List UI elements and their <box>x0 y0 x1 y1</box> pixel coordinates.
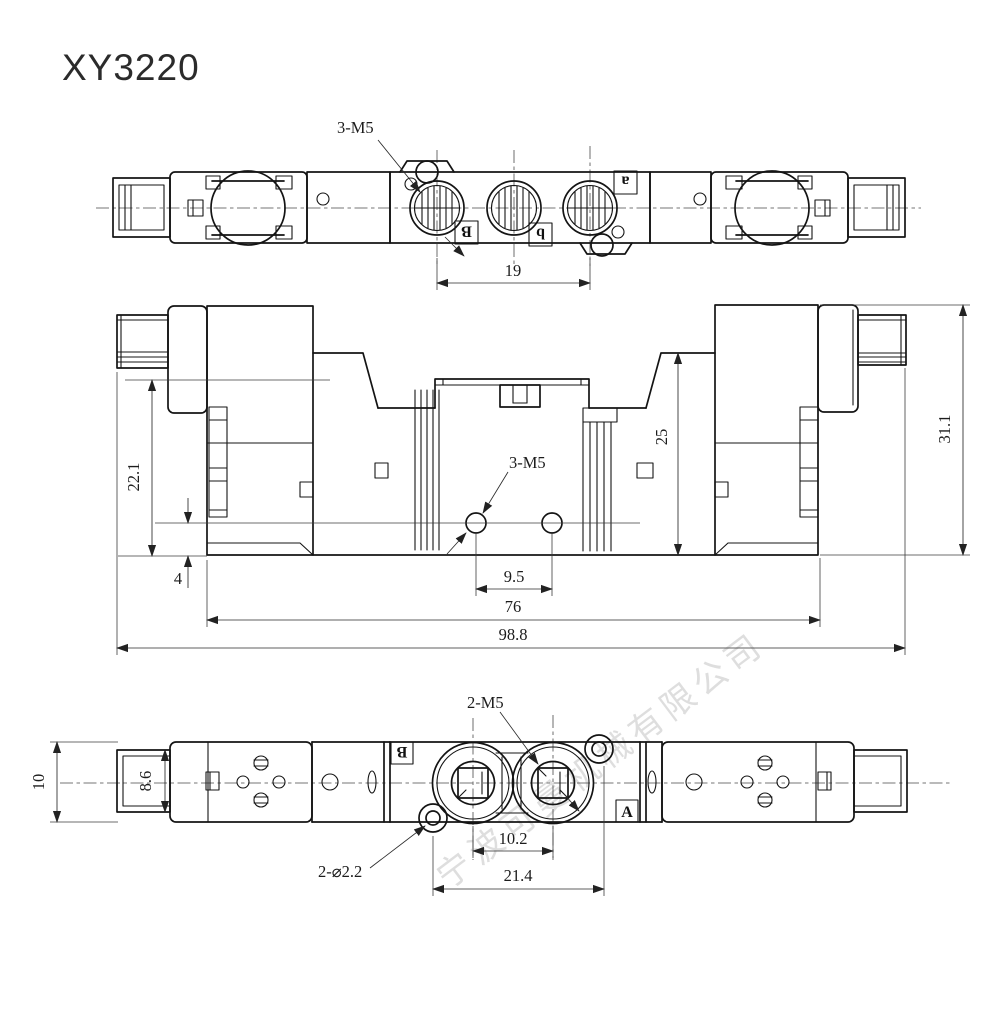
svg-text:9.5: 9.5 <box>504 567 525 586</box>
svg-text:31.1: 31.1 <box>935 415 954 444</box>
front-dim-hole-offset: 4 <box>174 498 188 588</box>
drawing-page: XY3220 宁波可曼机械有限公司 <box>0 0 1000 1015</box>
svg-text:19: 19 <box>505 261 522 280</box>
front-view: 3-M5 22.1 4 9.5 76 <box>117 305 970 655</box>
front-dim-overall-height: 31.1 <box>935 305 963 555</box>
bottom-right-connector <box>854 750 907 812</box>
svg-text:4: 4 <box>174 569 182 588</box>
drawing-title: XY3220 <box>62 47 200 88</box>
front-left-solenoid-body <box>207 306 313 555</box>
top-dim-port-spacing: 19 <box>437 258 590 290</box>
svg-text:3-M5: 3-M5 <box>509 453 546 472</box>
bottom-port-label-B: B <box>391 742 413 764</box>
valve-drawing: XY3220 宁波可曼机械有限公司 <box>0 0 1000 1015</box>
svg-text:2-M5: 2-M5 <box>467 693 504 712</box>
svg-text:B: B <box>461 223 472 240</box>
svg-text:22.1: 22.1 <box>124 463 143 492</box>
top-port-label-a: a <box>614 171 637 194</box>
front-left-connector <box>117 315 168 368</box>
svg-text:76: 76 <box>505 597 522 616</box>
front-dim-center-height: 25 <box>652 353 678 555</box>
front-left-mount <box>168 306 207 413</box>
front-thread-callout: 3-M5 <box>447 453 546 554</box>
svg-text:10.2: 10.2 <box>499 829 528 848</box>
svg-text:a: a <box>622 173 630 190</box>
top-view-centerlines <box>96 146 921 266</box>
bottom-right-solenoid <box>662 742 854 822</box>
watermark-text: 宁波可曼机械有限公司 <box>430 625 772 896</box>
top-left-coil-block <box>307 172 390 243</box>
front-right-solenoid-body <box>715 305 818 555</box>
svg-text:21.4: 21.4 <box>504 866 533 885</box>
bottom-dim-connector-height: 8.6 <box>136 750 165 812</box>
front-dim-solenoid-height: 22.1 <box>124 380 152 556</box>
svg-text:A: A <box>621 804 633 821</box>
svg-text:3-M5: 3-M5 <box>337 118 374 137</box>
front-right-connector <box>858 315 906 365</box>
svg-text:25: 25 <box>652 429 671 446</box>
svg-text:2-⌀2.2: 2-⌀2.2 <box>318 862 362 881</box>
bottom-left-mid-section <box>312 742 390 822</box>
top-left-connector <box>113 178 170 237</box>
svg-text:B: B <box>396 743 407 760</box>
svg-text:8.6: 8.6 <box>136 771 155 792</box>
svg-text:98.8: 98.8 <box>499 625 528 644</box>
front-dim-hole-spacing: 9.5 <box>476 533 552 596</box>
top-view: B b a <box>96 118 921 290</box>
front-right-mount <box>818 305 858 412</box>
svg-text:10: 10 <box>29 774 48 791</box>
bottom-left-solenoid <box>170 742 312 822</box>
svg-text:b: b <box>536 225 545 242</box>
bottom-port-label-A: A <box>616 800 638 822</box>
bottom-right-mid-section <box>640 742 702 822</box>
bottom-dim-overall-height: 10 <box>29 742 118 822</box>
top-right-connector <box>848 178 905 237</box>
top-right-coil-block <box>650 172 711 243</box>
bottom-hole-callout: 2-⌀2.2 <box>318 826 425 881</box>
